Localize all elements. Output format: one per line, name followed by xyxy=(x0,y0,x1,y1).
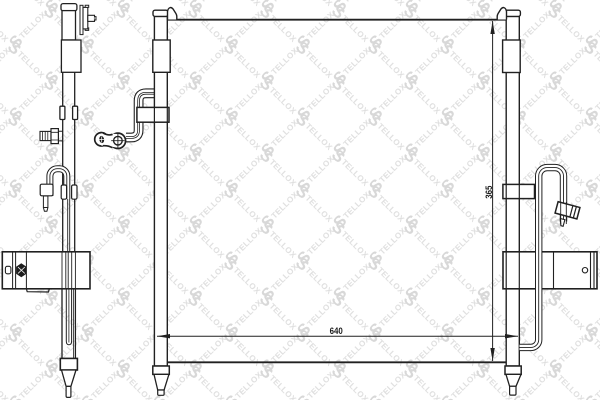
svg-text:365: 365 xyxy=(484,185,495,199)
svg-text:640: 640 xyxy=(330,326,343,337)
